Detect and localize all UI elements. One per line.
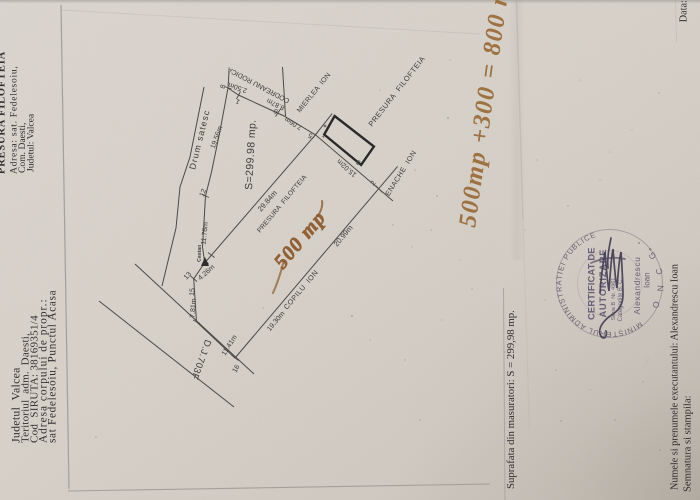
svg-text:15: 15 (189, 288, 197, 296)
svg-text:Alexandrescu: Alexandrescu (633, 256, 642, 314)
svg-text:Data:: Data: (679, 0, 690, 22)
svg-text:Judetul: Valcea: Judetul: Valcea (26, 113, 37, 172)
svg-text:Semnatura si stampila:: Semnatura si stampila: (683, 395, 694, 492)
svg-text:Suprafata din masuratori: S =: Suprafata din masuratori: S = 299,98 mp. (505, 310, 517, 489)
svg-text:CERTIFICAT DE: CERTIFICAT DE (587, 247, 597, 320)
svg-text:Ioan: Ioan (643, 272, 652, 288)
svg-text:sat Fedelesoiu, Punctul Acasa: sat Fedelesoiu, Punctul Acasa (47, 290, 59, 443)
svg-text:Numele si prenumele executantu: Numele si prenumele executantului: Alexa… (670, 264, 681, 490)
svg-text:Castan: Castan (197, 245, 204, 263)
svg-text:7,81m: 7,81m (190, 298, 198, 318)
svg-text:PRESURA FILOFTEIA: PRESURA FILOFTEIA (0, 51, 8, 174)
